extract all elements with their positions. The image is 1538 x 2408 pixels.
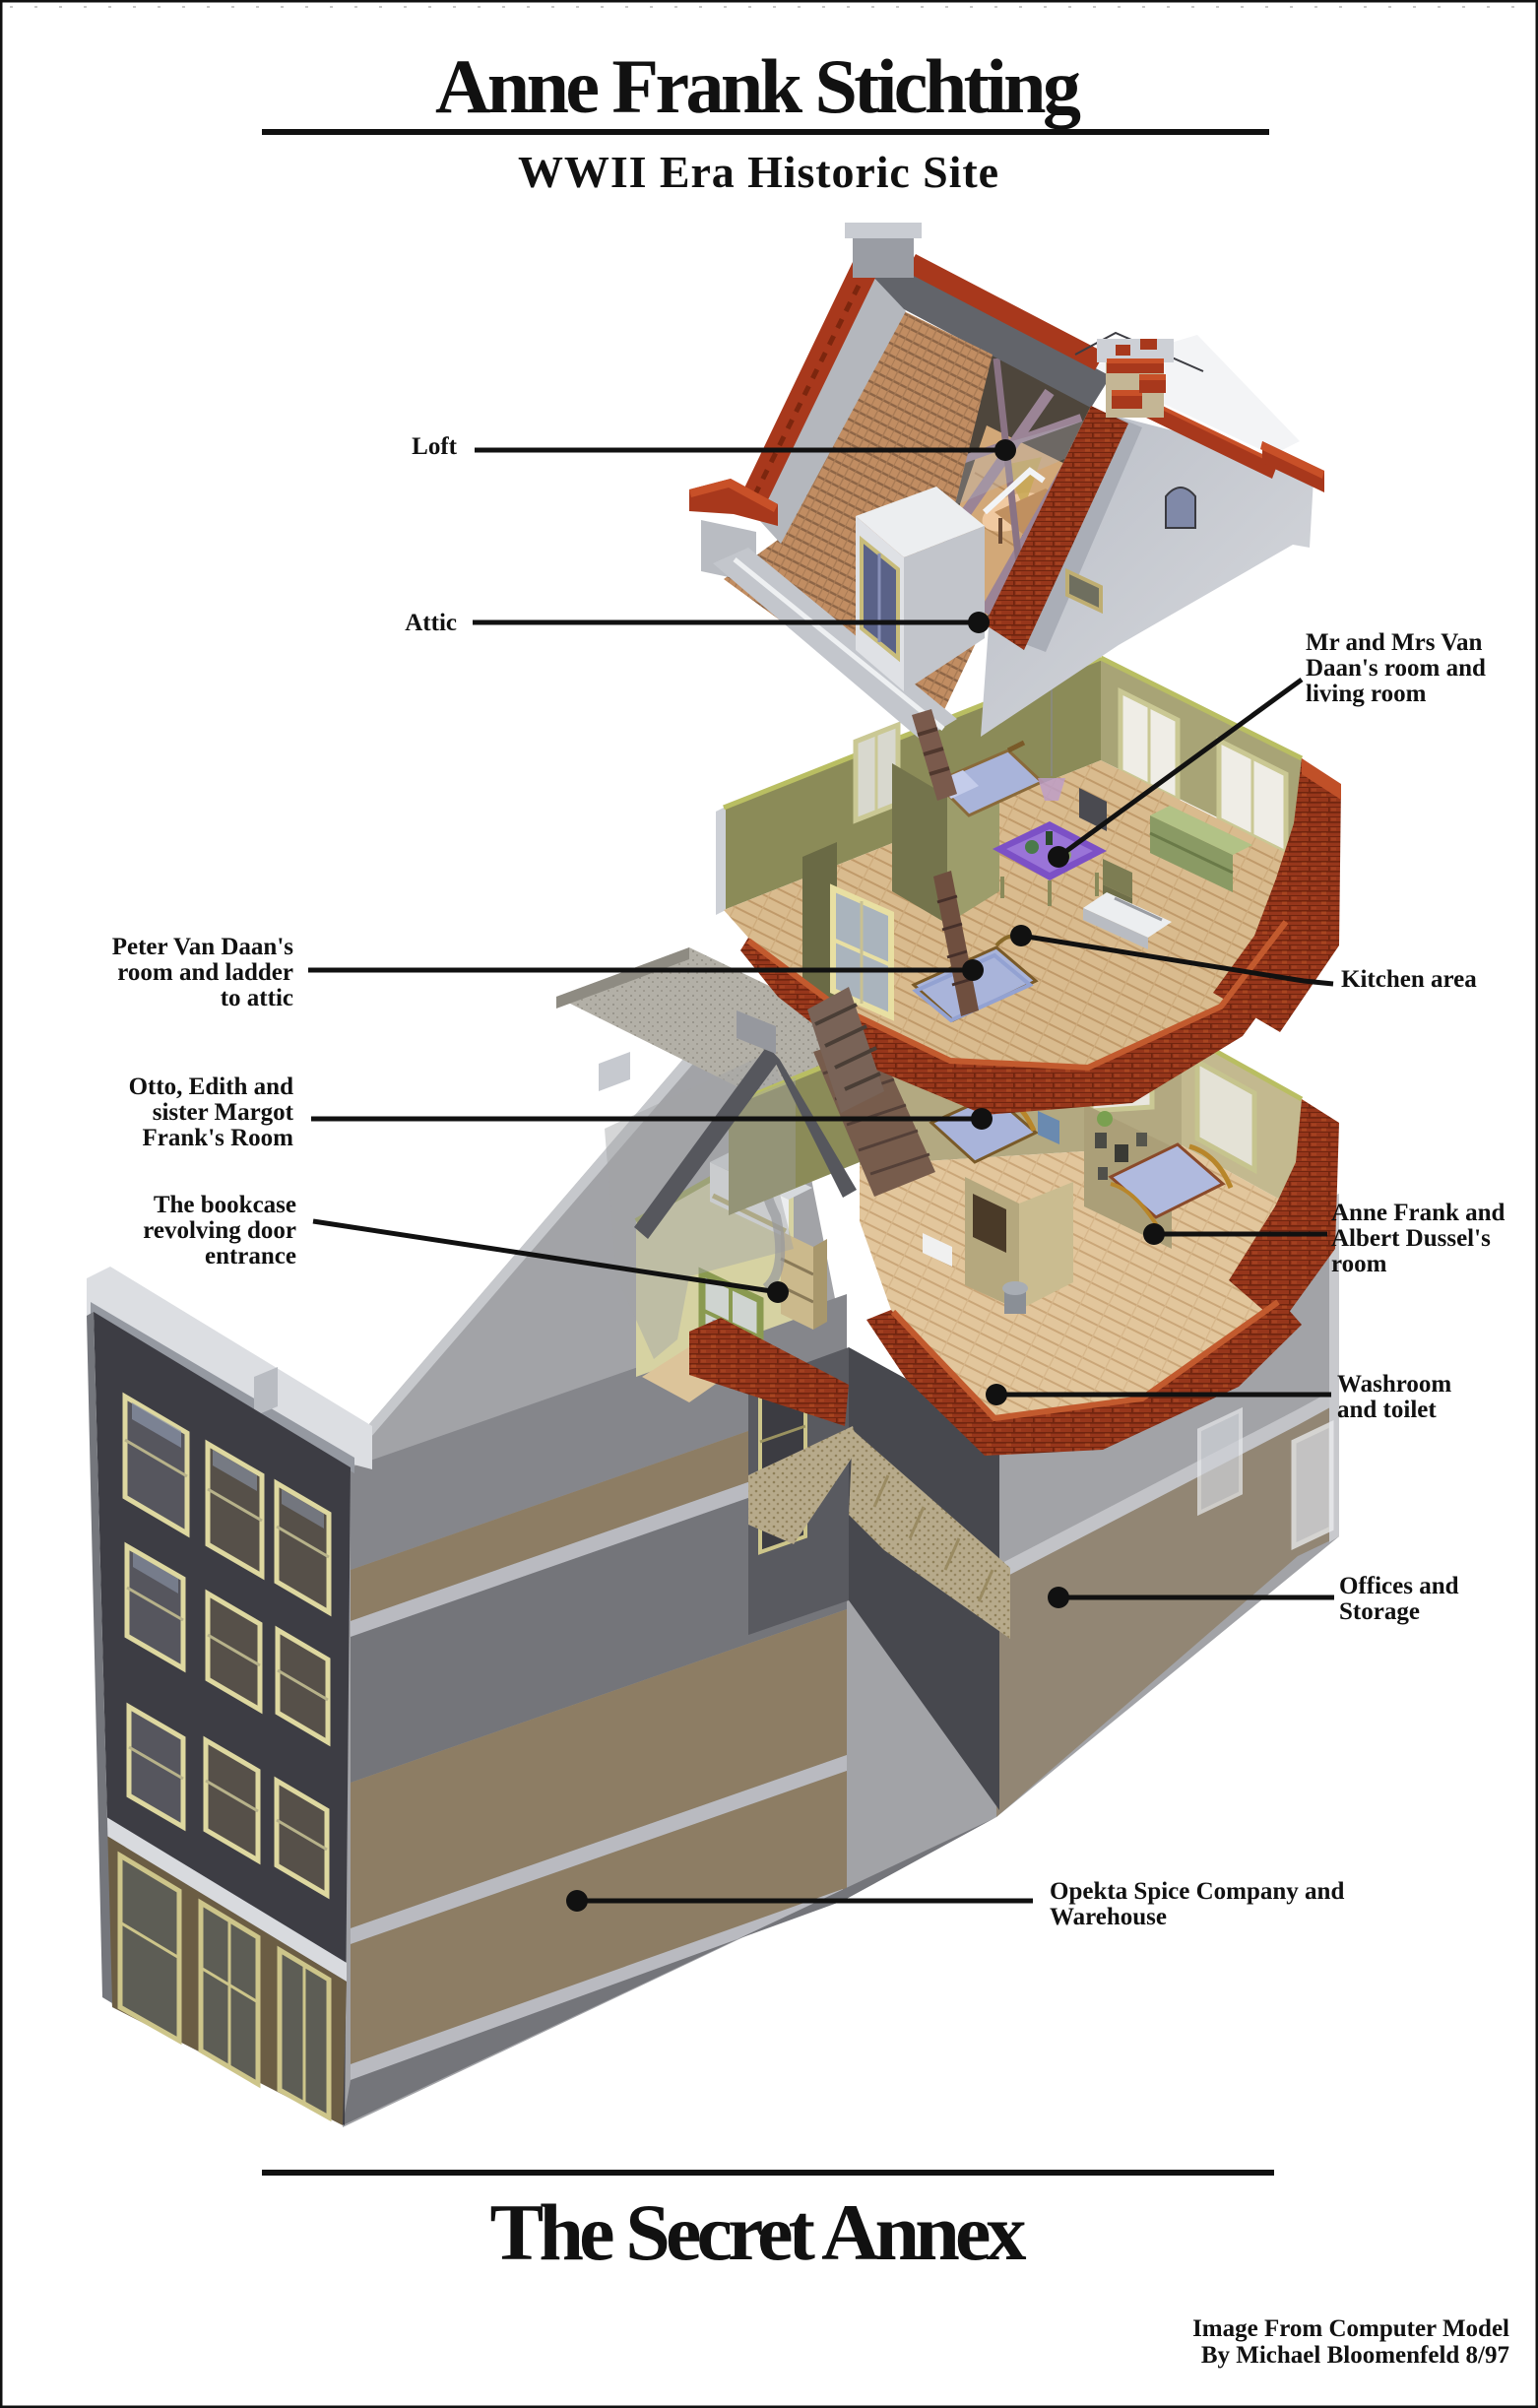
svg-text:Warehouse: Warehouse: [1050, 1904, 1167, 1930]
svg-text:room: room: [1331, 1251, 1387, 1277]
svg-text:The Secret Annex: The Secret Annex: [490, 2187, 1027, 2277]
svg-text:WWII Era Historic Site: WWII Era Historic Site: [518, 147, 998, 197]
svg-text:Kitchen area: Kitchen area: [1341, 966, 1477, 993]
svg-text:Attic: Attic: [405, 610, 457, 636]
svg-text:Loft: Loft: [412, 433, 458, 460]
svg-text:Storage: Storage: [1339, 1598, 1420, 1625]
svg-text:Offices and: Offices and: [1339, 1573, 1459, 1599]
svg-text:Otto, Edith and: Otto, Edith and: [129, 1074, 294, 1100]
svg-text:Frank's Room: Frank's Room: [143, 1125, 294, 1151]
svg-text:The bookcase: The bookcase: [154, 1192, 296, 1218]
svg-text:living room: living room: [1306, 681, 1427, 707]
svg-text:Anne Frank and: Anne Frank and: [1331, 1200, 1506, 1226]
svg-text:Peter Van Daan's: Peter Van Daan's: [112, 934, 294, 960]
svg-text:entrance: entrance: [205, 1243, 296, 1269]
svg-text:and toilet: and toilet: [1337, 1397, 1437, 1423]
svg-text:Daan's room and: Daan's room and: [1306, 655, 1486, 682]
svg-text:Image From Computer Model: Image From Computer Model: [1192, 2315, 1509, 2342]
svg-text:room and ladder: room and ladder: [117, 959, 293, 986]
svg-text:Albert Dussel's: Albert Dussel's: [1331, 1225, 1491, 1252]
svg-text:Opekta Spice Company and: Opekta Spice Company and: [1050, 1878, 1344, 1905]
svg-text:Washroom: Washroom: [1337, 1371, 1451, 1398]
svg-text:sister Margot: sister Margot: [153, 1099, 294, 1126]
svg-text:Anne Frank Stichting: Anne Frank Stichting: [435, 43, 1081, 129]
svg-text:revolving door: revolving door: [143, 1217, 296, 1244]
svg-text:By Michael Bloomenfeld 8/97: By Michael Bloomenfeld 8/97: [1201, 2342, 1509, 2369]
svg-text:Mr and Mrs Van: Mr and Mrs Van: [1306, 629, 1483, 656]
svg-text:to attic: to attic: [221, 985, 293, 1011]
